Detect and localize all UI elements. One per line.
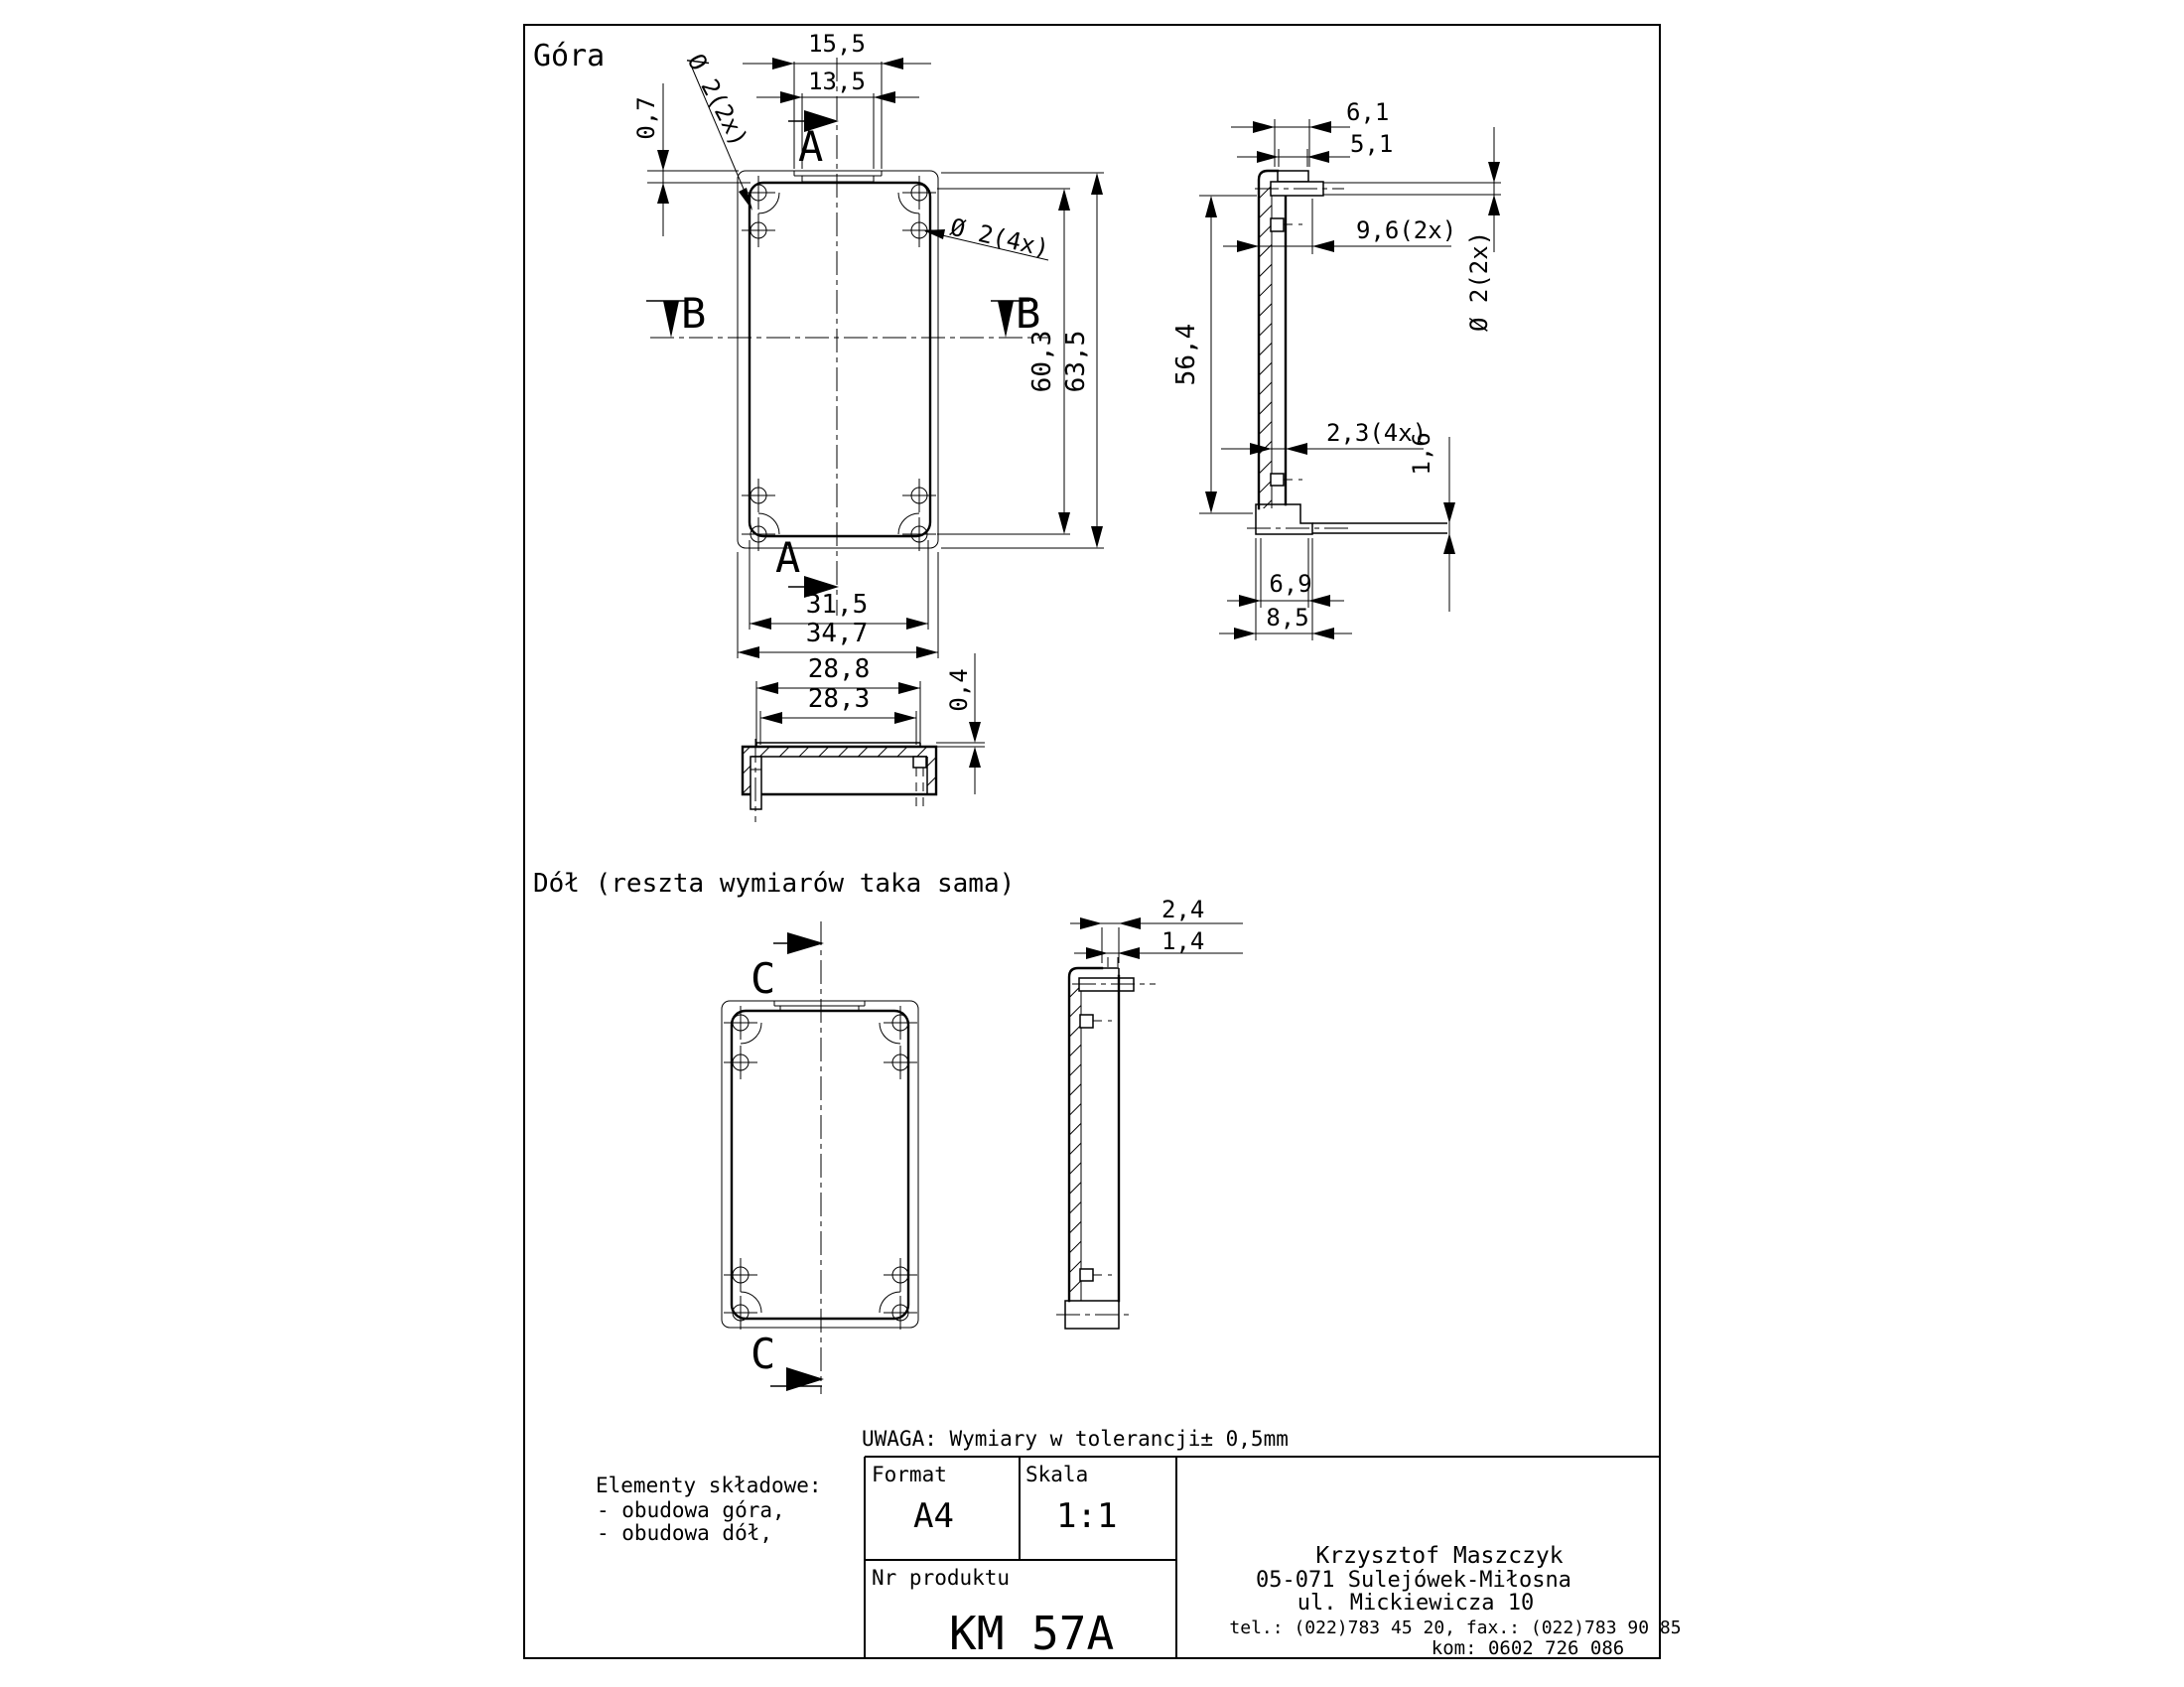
bottom-view: Dół (reszta wymiarów taka sama) C C: [533, 869, 1015, 1394]
section-b-right: B: [1016, 289, 1040, 338]
top-view-title: Góra: [533, 39, 605, 73]
dim-side-tab-inner: 5,1: [1350, 130, 1393, 158]
section-a-top: A: [798, 122, 823, 171]
section-c-bottom: C: [751, 1330, 775, 1378]
dim-side-foot-outer: 8,5: [1266, 604, 1308, 632]
dim-width-outer: 34,7: [806, 619, 869, 648]
bottom-side-view: 2,4 1,4: [1056, 896, 1243, 1329]
dim-holes-top: Ø 2(2x): [682, 50, 753, 151]
bottom-view-outer-outline: [722, 1001, 918, 1328]
drawing-page: Góra 15,5 13,5 0,7 Ø 2(2x) Ø 2(4x): [0, 0, 2184, 1687]
manufacturer-phone-fax: tel.: (022)783 45 20, fax.: (022)783 90 …: [1229, 1617, 1681, 1638]
format-label: Format: [872, 1463, 947, 1486]
tolerance-note: UWAGA: Wymiary w tolerancji± 0,5mm: [862, 1427, 1289, 1451]
scale-label: Skala: [1025, 1463, 1088, 1486]
section-a-bottom: A: [775, 533, 800, 582]
dim-sectionb-step: 0,4: [945, 668, 973, 711]
section-b-left: B: [681, 289, 706, 338]
dim-length-inner: 60,3: [1027, 331, 1057, 393]
dim-side-inner-height: 56,4: [1171, 324, 1201, 386]
bottom-view-inner-outline: [732, 1011, 908, 1319]
dim-bottom-tab-outer: 2,4: [1161, 896, 1204, 923]
product-number-label: Nr produktu: [872, 1566, 1010, 1590]
scale-value: 1:1: [1056, 1496, 1117, 1536]
dim-holes-corner: Ø 2(4x): [948, 213, 1052, 263]
components-title: Elementy składowe:: [596, 1474, 822, 1497]
dim-tab-outer: 15,5: [808, 30, 866, 58]
dim-bottom-tab-inner: 1,4: [1161, 927, 1204, 955]
dim-side-stud-dia: Ø 2(2x): [1465, 231, 1493, 332]
top-view: Góra 15,5 13,5 0,7 Ø 2(2x) Ø 2(4x): [533, 30, 1104, 658]
components-item: - obudowa góra,: [597, 1498, 785, 1522]
manufacturer-address-2: ul. Mickiewicza 10: [1297, 1591, 1534, 1616]
side-foot: [1256, 504, 1312, 534]
technical-drawing: Góra 15,5 13,5 0,7 Ø 2(2x) Ø 2(4x): [0, 0, 2184, 1687]
bottom-view-title: Dół (reszta wymiarów taka sama): [533, 869, 1015, 899]
format-value: A4: [913, 1496, 954, 1536]
title-block: Format A4 Skala 1:1 Nr produktu KM 57A K…: [865, 1457, 1682, 1660]
dim-sectionb-top: 28,8: [808, 654, 871, 684]
top-view-inner-outline: [750, 183, 930, 536]
section-b-view: 28,8 28,3 0,4: [743, 653, 985, 822]
dim-side-boss-length: 9,6(2x): [1356, 216, 1456, 244]
dim-side-tab-outer: 6,1: [1346, 98, 1389, 126]
side-section-view: 6,1 5,1 9,6(2x) Ø 2(2x) 56,4 2,3(4x) 1,6…: [1171, 98, 1501, 640]
dim-width-inner: 31,5: [806, 590, 869, 620]
dim-side-foot-inner: 6,9: [1269, 570, 1311, 598]
manufacturer-mobile: kom: 0602 726 086: [1432, 1637, 1624, 1659]
manufacturer-info: Krzysztof Maszczyk 05-071 Sulejówek-Miło…: [1229, 1543, 1681, 1659]
top-view-outer-outline: [738, 171, 938, 548]
manufacturer-name: Krzysztof Maszczyk: [1315, 1543, 1563, 1569]
product-number-value: KM 57A: [949, 1607, 1114, 1660]
dim-side-flange: 1,6: [1408, 432, 1435, 475]
manufacturer-address-1: 05-071 Sulejówek-Miłosna: [1256, 1568, 1571, 1593]
components-item: - obudowa dół,: [597, 1521, 772, 1545]
dim-tab-inner: 13,5: [808, 68, 866, 95]
dim-length-outer: 63,5: [1061, 331, 1091, 393]
dim-sectionb-bottom: 28,3: [808, 684, 871, 714]
section-c-top: C: [751, 954, 775, 1003]
dim-lip-offset: 0,7: [632, 96, 660, 139]
